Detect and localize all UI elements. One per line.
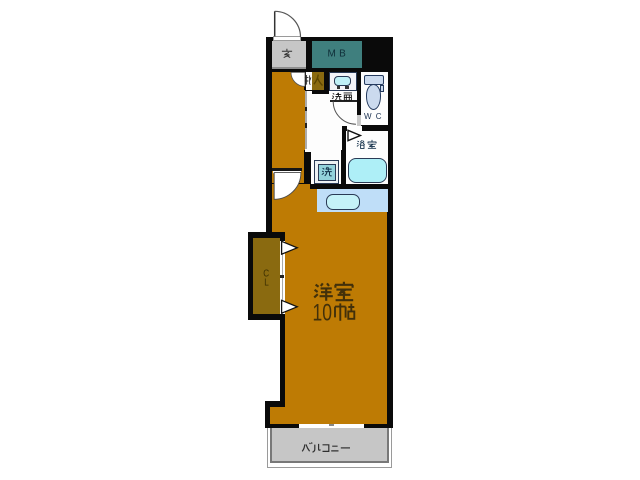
svg-text:MB: MB	[328, 48, 350, 59]
svg-text:L: L	[264, 276, 269, 288]
svg-text:WC: WC	[364, 112, 386, 121]
svg-text:10: 10	[313, 300, 332, 326]
